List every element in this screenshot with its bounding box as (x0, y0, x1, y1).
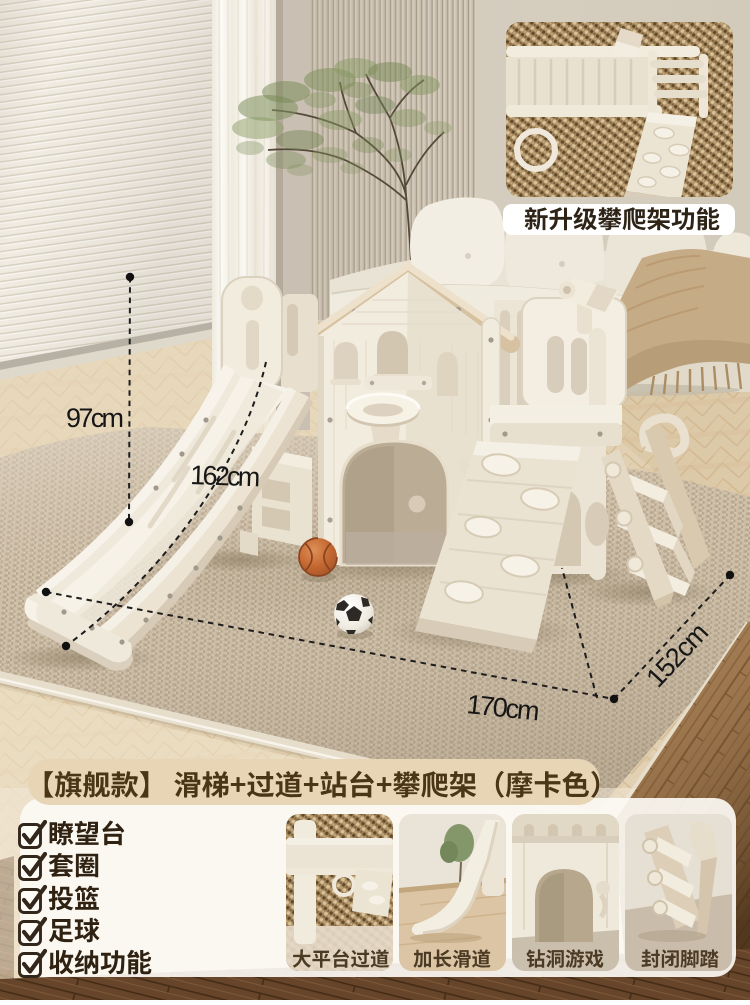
svg-text:162cm: 162cm (190, 460, 261, 492)
svg-text:97cm: 97cm (66, 403, 124, 433)
